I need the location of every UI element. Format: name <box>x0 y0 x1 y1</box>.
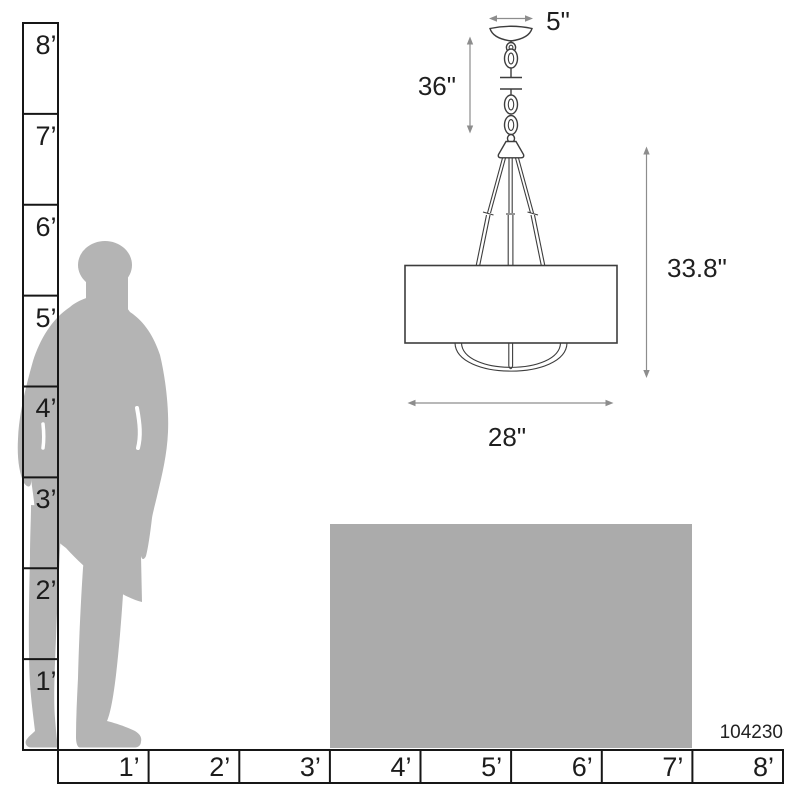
arrow-left-icon <box>408 400 416 406</box>
arrow-down-icon <box>643 370 649 378</box>
shade-width-label: 28" <box>488 422 526 452</box>
fixture-height-dimension: 33.8" <box>643 147 727 379</box>
product-number: 104230 <box>720 722 783 743</box>
bottom-ring <box>455 343 567 371</box>
figure-hand-gap <box>43 424 44 448</box>
drum-shade <box>405 266 617 344</box>
width-ruler-label: 4’ <box>390 752 411 782</box>
canopy <box>490 26 532 41</box>
chain-drop-label: 36" <box>418 71 456 101</box>
height-ruler-label: 5’ <box>35 303 56 333</box>
fixture-height-label: 33.8" <box>667 253 727 283</box>
width-ruler-label: 6’ <box>572 752 593 782</box>
hang-chain <box>500 40 522 143</box>
cone-finial <box>498 142 523 158</box>
chain-drop-dimension: 36" <box>418 37 473 134</box>
height-ruler-label: 2’ <box>35 575 56 605</box>
width-ruler-label: 3’ <box>300 752 321 782</box>
arrow-left-icon <box>489 15 497 22</box>
width-ruler: 1’ 2’ 3’ 4’ 5’ 6’ 7’ 8’ <box>58 750 783 783</box>
arrow-right-icon <box>525 15 533 22</box>
shade-width-dimension: 28" <box>408 400 614 452</box>
table-silhouette <box>330 524 692 748</box>
height-ruler-label: 1’ <box>35 666 56 696</box>
support-rods <box>476 158 545 267</box>
height-ruler-label: 6’ <box>35 212 56 242</box>
width-ruler-label: 5’ <box>481 752 502 782</box>
center-stem <box>509 343 513 369</box>
arrow-right-icon <box>606 400 614 406</box>
figure-left-leg <box>26 505 62 748</box>
height-ruler-label: 8’ <box>35 30 56 60</box>
height-ruler-label: 4’ <box>35 393 56 423</box>
dimension-diagram: 8’ 7’ 6’ 5’ 4’ 3’ 2’ 1’ 1’ 2’ 3’ 4’ 5’ 6… <box>0 0 800 800</box>
height-ruler-label: 3’ <box>35 484 56 514</box>
arrow-down-icon <box>467 126 473 134</box>
arrow-up-icon <box>467 37 473 45</box>
width-ruler-label: 8’ <box>753 752 774 782</box>
arrow-up-icon <box>643 147 649 155</box>
width-ruler-label: 2’ <box>209 752 230 782</box>
height-ruler-label: 7’ <box>35 121 56 151</box>
width-ruler-label: 1’ <box>119 752 140 782</box>
canopy-width-label: 5" <box>546 6 570 36</box>
width-ruler-label: 7’ <box>662 752 683 782</box>
